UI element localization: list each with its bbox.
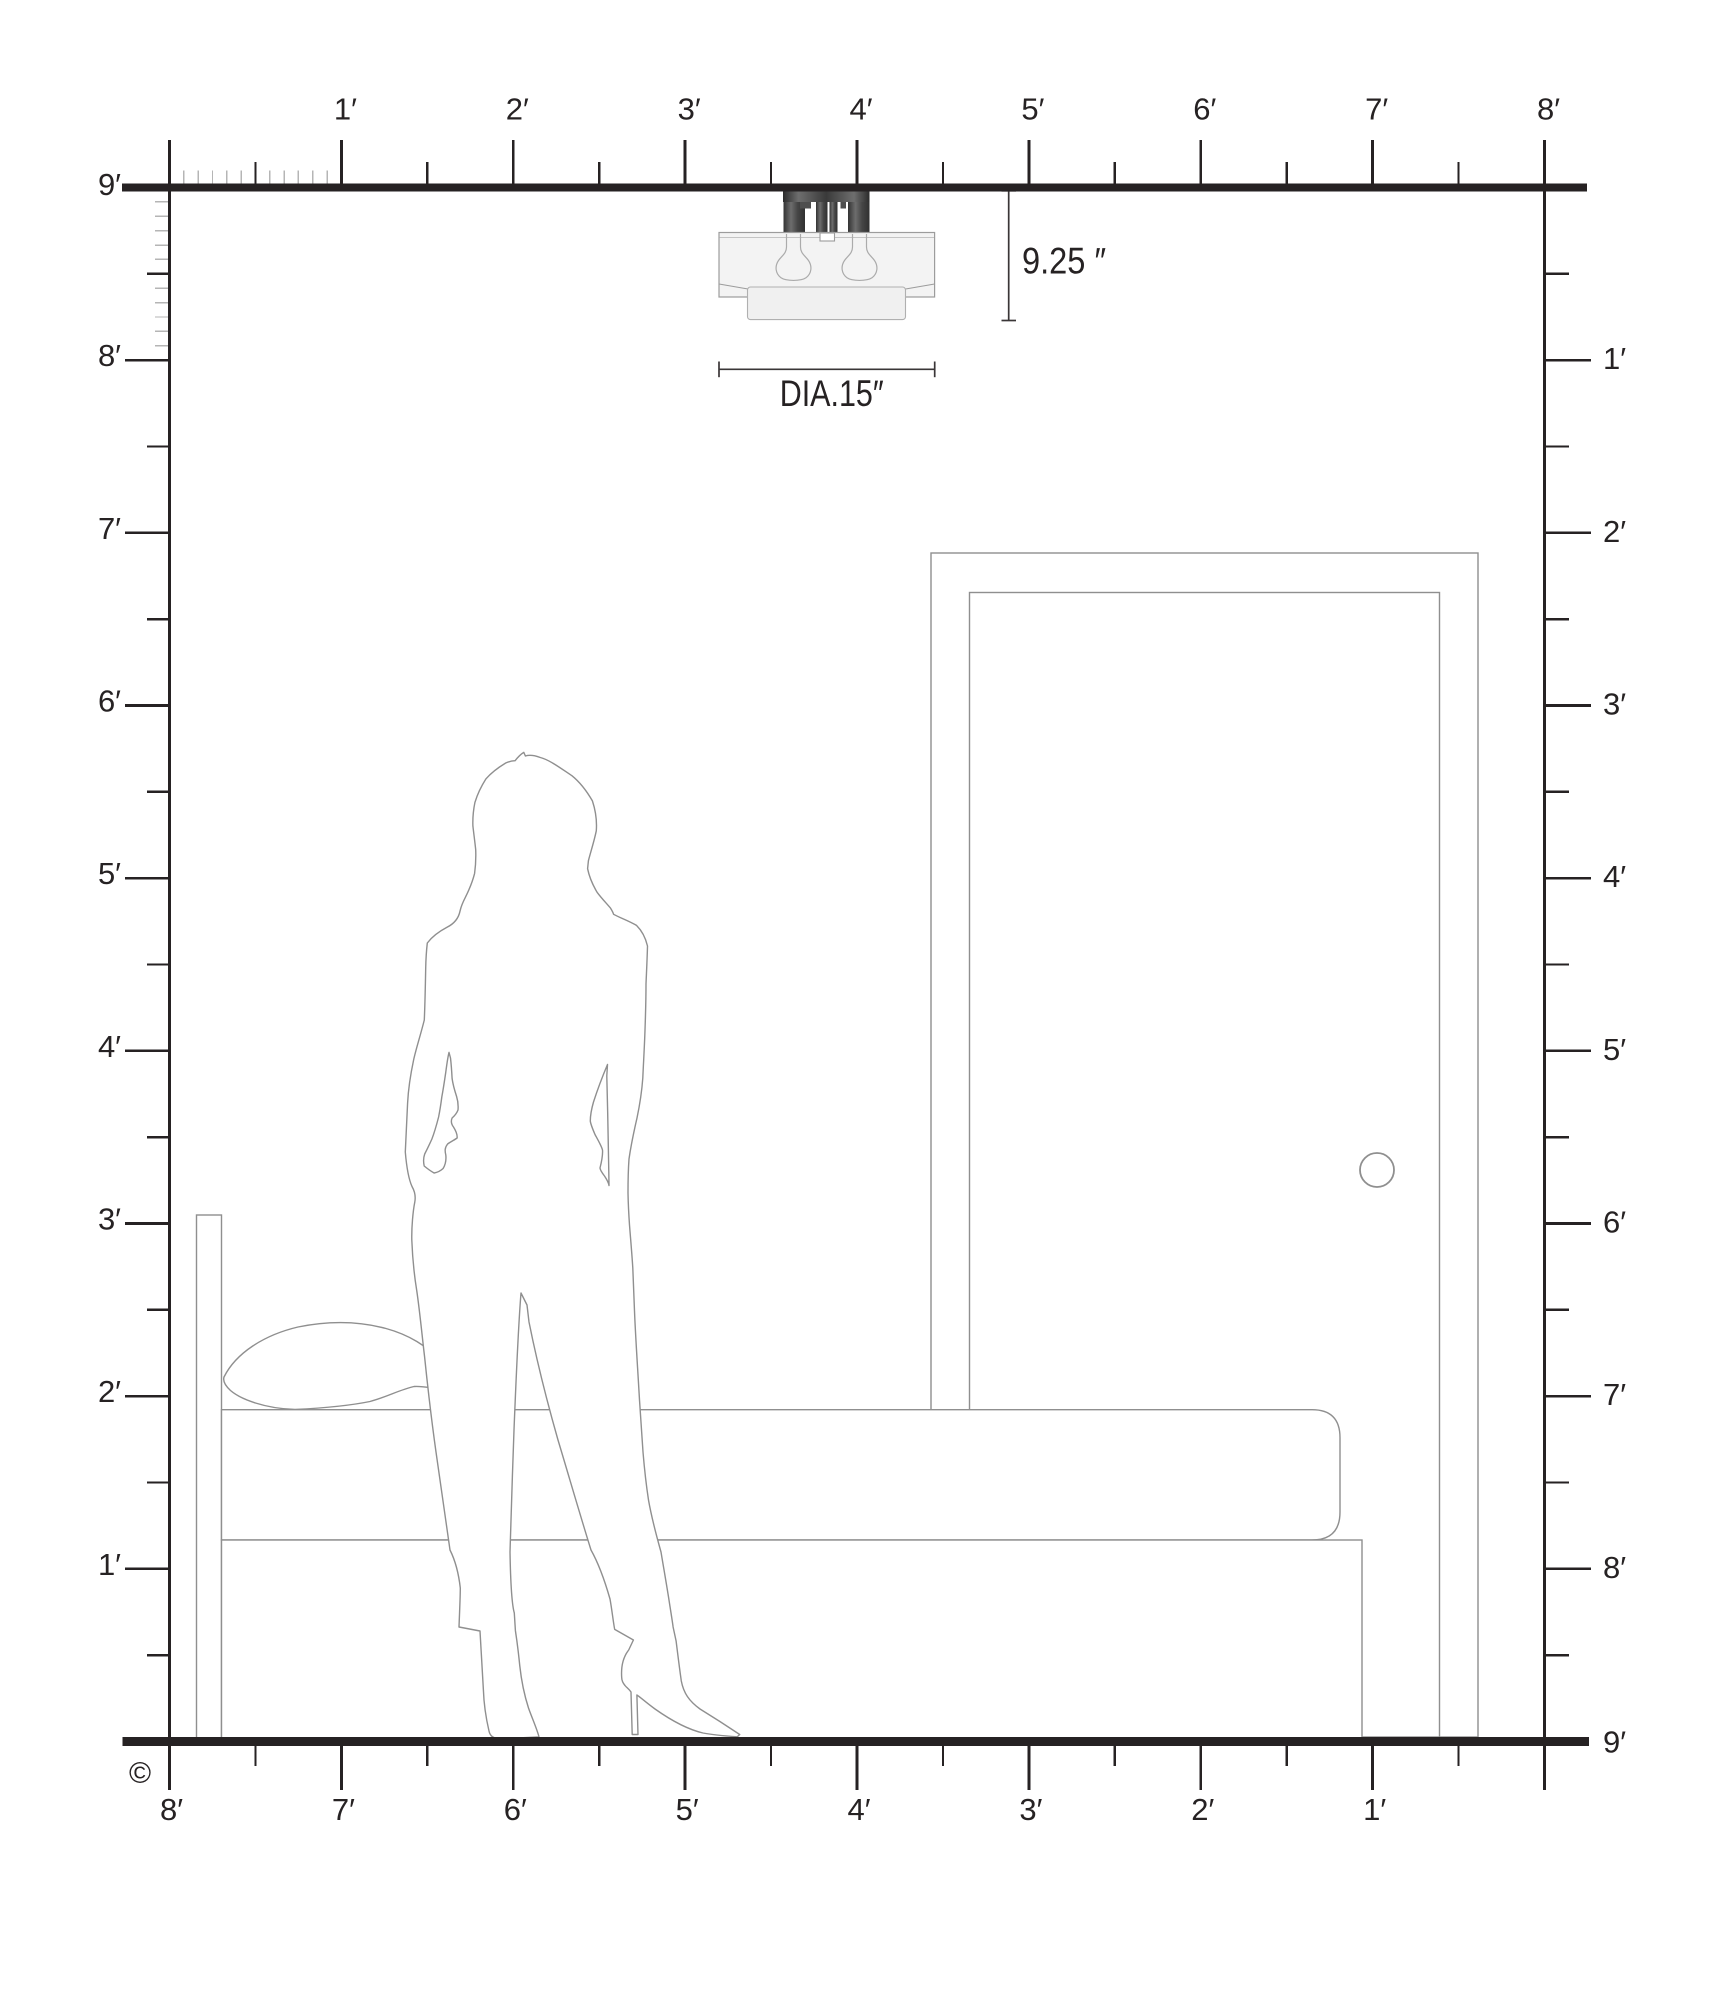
svg-text:1′: 1′ [98, 1547, 121, 1582]
svg-text:6′: 6′ [1603, 1205, 1626, 1240]
svg-text:3′: 3′ [678, 92, 701, 127]
svg-text:9.25 ″: 9.25 ″ [1022, 241, 1106, 282]
svg-text:8′: 8′ [1603, 1550, 1626, 1585]
svg-text:9′: 9′ [1603, 1725, 1626, 1760]
svg-text:3′: 3′ [98, 1202, 121, 1237]
svg-text:4′: 4′ [98, 1029, 121, 1064]
svg-text:6′: 6′ [504, 1792, 527, 1827]
svg-text:8′: 8′ [98, 338, 121, 373]
svg-text:2′: 2′ [1603, 514, 1626, 549]
svg-text:©: © [129, 1757, 151, 1790]
svg-text:4′: 4′ [847, 1792, 870, 1827]
svg-text:2′: 2′ [1191, 1792, 1214, 1827]
svg-text:1′: 1′ [1363, 1792, 1386, 1827]
svg-text:2′: 2′ [98, 1374, 121, 1409]
svg-text:7′: 7′ [98, 511, 121, 546]
svg-text:9′: 9′ [98, 167, 121, 202]
svg-text:7′: 7′ [1603, 1377, 1626, 1412]
svg-text:2′: 2′ [506, 92, 529, 127]
svg-text:6′: 6′ [1193, 92, 1216, 127]
svg-text:5′: 5′ [98, 856, 121, 891]
svg-text:DIA.15″: DIA.15″ [780, 373, 884, 414]
svg-text:5′: 5′ [676, 1792, 699, 1827]
svg-text:8′: 8′ [1537, 92, 1560, 127]
svg-text:3′: 3′ [1019, 1792, 1042, 1827]
svg-text:7′: 7′ [332, 1792, 355, 1827]
svg-text:5′: 5′ [1021, 92, 1044, 127]
svg-text:3′: 3′ [1603, 687, 1626, 722]
svg-text:4′: 4′ [1603, 859, 1626, 894]
svg-text:1′: 1′ [334, 92, 357, 127]
svg-text:7′: 7′ [1365, 92, 1388, 127]
svg-text:5′: 5′ [1603, 1032, 1626, 1067]
svg-text:6′: 6′ [98, 684, 121, 719]
svg-text:8′: 8′ [160, 1792, 183, 1827]
svg-text:1′: 1′ [1603, 341, 1626, 376]
svg-text:4′: 4′ [849, 92, 872, 127]
